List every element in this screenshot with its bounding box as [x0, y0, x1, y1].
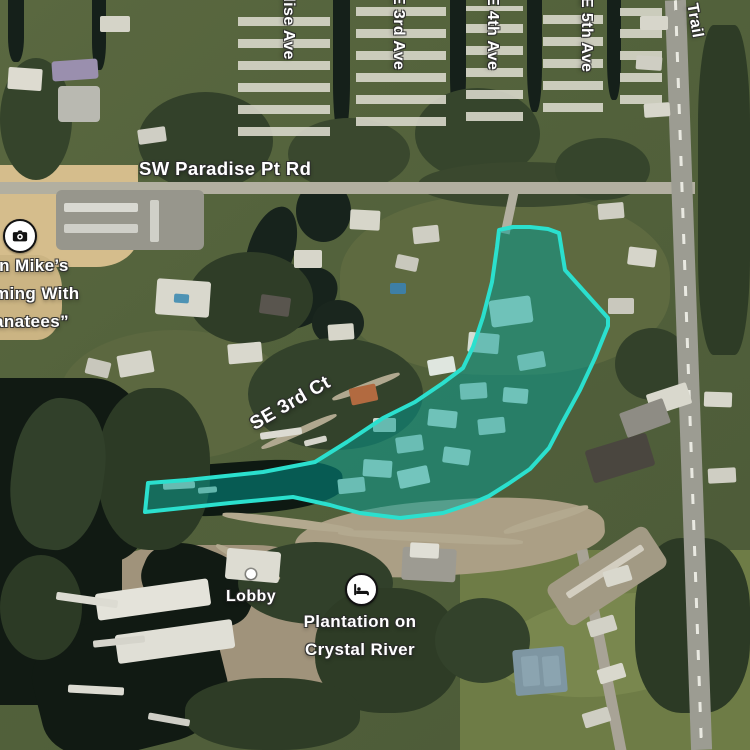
poi-hotel-label[interactable]: Plantation on Crystal River: [304, 608, 417, 664]
camera-glyph: [9, 225, 31, 247]
street-label-e-5th-ave: E 5th Ave: [577, 0, 595, 72]
street-label-e-4th-ave: E 4th Ave: [483, 0, 501, 70]
satellite-map[interactable]: dise Ave E 3rd Ave E 4th Ave E 5th Ave T…: [0, 0, 750, 750]
street-label-sw-paradise-pt-rd: SW Paradise Pt Rd: [139, 158, 311, 180]
street-label-paradise-ave: dise Ave: [279, 0, 297, 60]
bed-glyph: [351, 579, 372, 600]
poi-lobby-label[interactable]: Lobby: [226, 588, 276, 606]
street-label-e-3rd-ave: E 3rd Ave: [389, 0, 407, 70]
poi-attraction-label[interactable]: in Mike’s ming With anatees”: [0, 252, 80, 336]
dot-marker[interactable]: [246, 569, 256, 579]
camera-icon[interactable]: [3, 219, 37, 253]
selected-area-polygon[interactable]: [145, 227, 608, 518]
bed-icon[interactable]: [345, 573, 378, 606]
